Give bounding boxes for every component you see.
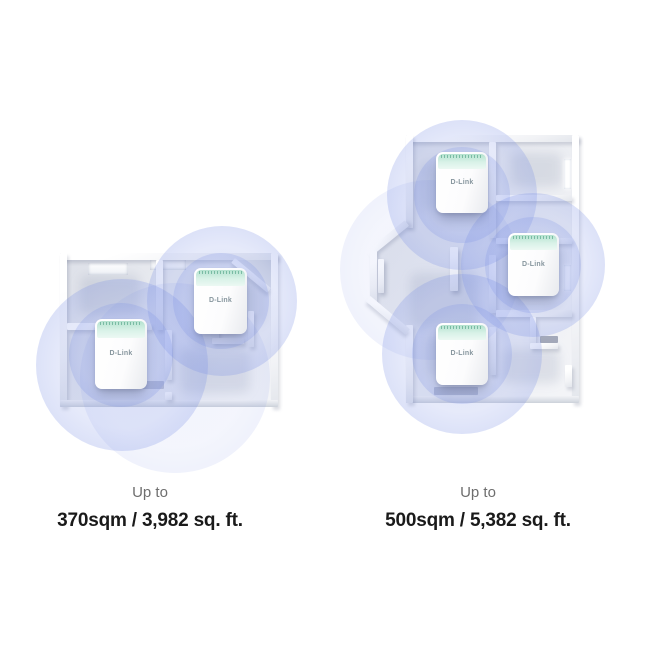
device-top-panel [438,154,486,169]
device-top-panel [438,325,486,340]
floorplan-2pack: D-Link D-Link [60,253,278,407]
coverage-text: 500sqm / 5,382 sq. ft. [328,510,628,532]
mesh-device: D-Link [436,323,488,385]
page: D-Link D-Link [0,0,653,653]
mesh-device: D-Link [508,233,559,296]
caption-prefix: Up to [328,484,628,501]
antenna-ridges-icon [441,326,483,329]
table [540,336,558,343]
wall-segment [565,365,572,387]
device-logo: D-Link [194,297,247,304]
device-logo: D-Link [436,179,488,186]
device-logo: D-Link [95,350,147,357]
mesh-device: D-Link [95,319,147,389]
caption-2pack: Up to 370sqm / 3,982 sq. ft. [0,484,300,532]
mesh-device: D-Link [436,152,488,213]
caption-3pack: Up to 500sqm / 5,382 sq. ft. [328,484,628,532]
device-top-panel [510,235,557,250]
floorplan-3pack: D-Link D-Link D-Link [370,135,579,403]
device-top-panel [97,321,145,338]
coverage-text: 370sqm / 3,982 sq. ft. [0,510,300,532]
mesh-device: D-Link [194,268,247,334]
caption-prefix: Up to [0,484,300,501]
device-top-panel [196,270,245,286]
antenna-ridges-icon [441,155,483,158]
window-recess [564,159,571,189]
skylight [88,263,128,275]
antenna-ridges-icon [199,271,242,274]
antenna-ridges-icon [100,322,142,325]
device-logo: D-Link [508,261,559,268]
antenna-ridges-icon [513,236,554,239]
device-logo: D-Link [436,350,488,357]
